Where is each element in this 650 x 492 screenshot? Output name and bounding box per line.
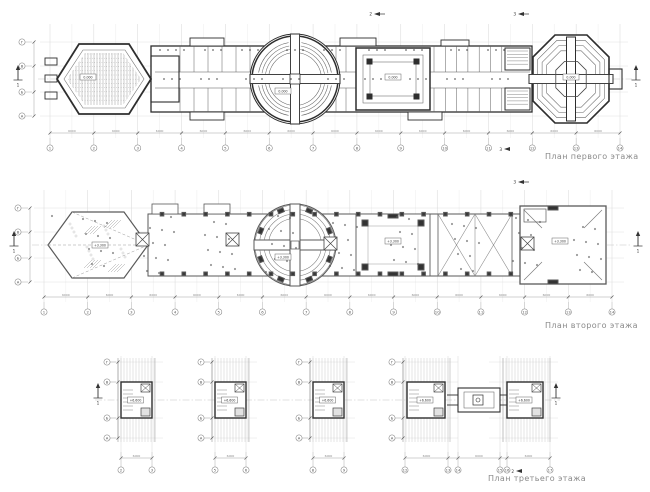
svg-text:В: В bbox=[17, 229, 20, 234]
svg-text:1: 1 bbox=[635, 83, 638, 88]
svg-text:1: 1 bbox=[637, 249, 640, 254]
svg-text:А: А bbox=[200, 435, 203, 440]
entrance-block bbox=[408, 112, 442, 120]
caption-second-floor: План второго этажа bbox=[545, 321, 638, 330]
svg-text:6000: 6000 bbox=[227, 454, 235, 458]
svg-text:+3.300: +3.300 bbox=[387, 239, 399, 243]
svg-text:6000: 6000 bbox=[368, 293, 376, 297]
svg-text:А: А bbox=[21, 113, 24, 118]
svg-text:6000: 6000 bbox=[550, 129, 558, 133]
svg-text:6000: 6000 bbox=[455, 293, 463, 297]
svg-text:10: 10 bbox=[442, 145, 447, 150]
rotunda-hall bbox=[250, 34, 340, 124]
svg-text:0.000: 0.000 bbox=[278, 89, 287, 93]
svg-text:6000: 6000 bbox=[243, 129, 251, 133]
svg-text:6000: 6000 bbox=[287, 129, 295, 133]
svg-text:Б: Б bbox=[21, 89, 24, 94]
column-pier bbox=[414, 59, 419, 64]
svg-text:14: 14 bbox=[456, 467, 461, 472]
mid-pier bbox=[388, 272, 398, 276]
svg-text:Б: Б bbox=[298, 415, 301, 420]
svg-text:Б: Б bbox=[106, 415, 109, 420]
svg-text:В: В bbox=[21, 63, 24, 68]
third-floor-plan-drawing: +6.600+6.600+6.600+6.600+6.6006000236000… bbox=[0, 340, 650, 492]
wall-stub bbox=[548, 206, 558, 210]
svg-text:+3.300: +3.300 bbox=[277, 255, 289, 259]
svg-text:0.000: 0.000 bbox=[388, 75, 397, 79]
svg-text:А: А bbox=[391, 435, 394, 440]
svg-text:6000: 6000 bbox=[463, 129, 471, 133]
first-floor-plan-drawing: 1234567891011121314600060006000600060006… bbox=[0, 0, 650, 168]
svg-text:+3.300: +3.300 bbox=[94, 243, 106, 247]
svg-text:1: 1 bbox=[555, 401, 558, 406]
svg-text:+6.600: +6.600 bbox=[224, 398, 236, 402]
svg-text:6000: 6000 bbox=[586, 293, 594, 297]
roof-block bbox=[152, 204, 178, 214]
svg-text:0.000: 0.000 bbox=[566, 75, 575, 79]
corner-pier bbox=[362, 264, 368, 270]
svg-text:12: 12 bbox=[522, 309, 527, 314]
svg-text:6000: 6000 bbox=[237, 293, 245, 297]
svg-text:6000: 6000 bbox=[68, 129, 76, 133]
svg-text:6000: 6000 bbox=[149, 293, 157, 297]
svg-text:+6.600: +6.600 bbox=[130, 398, 142, 402]
svg-text:13: 13 bbox=[446, 467, 451, 472]
wall-stub bbox=[548, 280, 558, 284]
svg-text:3: 3 bbox=[499, 147, 502, 152]
svg-text:6000: 6000 bbox=[156, 129, 164, 133]
svg-text:13: 13 bbox=[566, 309, 571, 314]
svg-text:6000: 6000 bbox=[133, 454, 141, 458]
svg-text:В: В bbox=[298, 379, 301, 384]
svg-text:13: 13 bbox=[574, 145, 579, 150]
svg-text:+6.600: +6.600 bbox=[518, 398, 530, 402]
column-pier bbox=[367, 59, 372, 64]
svg-text:15: 15 bbox=[498, 467, 503, 472]
svg-text:6000: 6000 bbox=[62, 293, 70, 297]
entrance-block bbox=[441, 40, 469, 46]
svg-text:А: А bbox=[17, 279, 20, 284]
svg-text:11: 11 bbox=[479, 309, 484, 314]
svg-text:1: 1 bbox=[17, 83, 20, 88]
svg-text:6000: 6000 bbox=[419, 129, 427, 133]
svg-text:6000: 6000 bbox=[525, 454, 533, 458]
svg-text:6000: 6000 bbox=[200, 129, 208, 133]
svg-text:А: А bbox=[106, 435, 109, 440]
corner-pier bbox=[418, 264, 424, 270]
svg-text:6000: 6000 bbox=[475, 454, 483, 458]
svg-text:1: 1 bbox=[97, 401, 100, 406]
svg-text:+6.600: +6.600 bbox=[419, 398, 431, 402]
svg-text:14: 14 bbox=[610, 309, 615, 314]
west-stub bbox=[45, 58, 57, 65]
svg-text:2: 2 bbox=[369, 12, 372, 17]
svg-text:14: 14 bbox=[618, 145, 623, 150]
drawing-sheet: 1234567891011121314600060006000600060006… bbox=[0, 0, 650, 492]
svg-text:17: 17 bbox=[548, 467, 553, 472]
caption-third-floor: План третьего этажа bbox=[488, 474, 586, 483]
svg-text:В: В bbox=[106, 379, 109, 384]
svg-text:6000: 6000 bbox=[594, 129, 602, 133]
column-pier bbox=[414, 94, 419, 99]
svg-text:Б: Б bbox=[391, 415, 394, 420]
bridge-center-block bbox=[458, 388, 500, 412]
entrance-block bbox=[190, 38, 224, 46]
corner-pier bbox=[362, 220, 368, 226]
svg-text:6000: 6000 bbox=[331, 129, 339, 133]
second-floor-building bbox=[48, 204, 606, 286]
svg-text:6000: 6000 bbox=[423, 454, 431, 458]
svg-text:Б: Б bbox=[200, 415, 203, 420]
caption-first-floor: План первого этажа bbox=[545, 152, 639, 161]
svg-text:12: 12 bbox=[530, 145, 535, 150]
svg-text:+6.600: +6.600 bbox=[322, 398, 334, 402]
column-pier bbox=[367, 94, 372, 99]
svg-text:6000: 6000 bbox=[325, 454, 333, 458]
svg-text:6000: 6000 bbox=[507, 129, 515, 133]
svg-text:6000: 6000 bbox=[106, 293, 114, 297]
svg-text:6000: 6000 bbox=[280, 293, 288, 297]
svg-text:12: 12 bbox=[403, 467, 408, 472]
svg-text:3: 3 bbox=[513, 180, 516, 185]
svg-text:Б: Б bbox=[17, 255, 20, 260]
svg-text:1: 1 bbox=[13, 249, 16, 254]
svg-text:+3.300: +3.300 bbox=[554, 239, 566, 243]
svg-text:6000: 6000 bbox=[112, 129, 120, 133]
svg-text:6000: 6000 bbox=[375, 129, 383, 133]
svg-text:3: 3 bbox=[513, 12, 516, 17]
svg-text:6000: 6000 bbox=[324, 293, 332, 297]
second-floor-plan-drawing: 1234567891011121314600060006000600060006… bbox=[0, 168, 650, 340]
west-stub bbox=[45, 75, 57, 82]
svg-text:А: А bbox=[298, 435, 301, 440]
svg-text:В: В bbox=[391, 379, 394, 384]
svg-text:11: 11 bbox=[486, 145, 491, 150]
entrance-block bbox=[340, 38, 376, 46]
west-stub bbox=[45, 92, 57, 99]
svg-text:6000: 6000 bbox=[499, 293, 507, 297]
first-floor-building bbox=[45, 34, 622, 124]
svg-text:10: 10 bbox=[435, 309, 440, 314]
svg-text:В: В bbox=[200, 379, 203, 384]
svg-text:6000: 6000 bbox=[193, 293, 201, 297]
svg-text:6000: 6000 bbox=[412, 293, 420, 297]
svg-text:16: 16 bbox=[505, 467, 510, 472]
corner-pier bbox=[418, 220, 424, 226]
svg-text:0.000: 0.000 bbox=[83, 75, 92, 79]
svg-text:6000: 6000 bbox=[543, 293, 551, 297]
entrance-block bbox=[190, 112, 224, 120]
